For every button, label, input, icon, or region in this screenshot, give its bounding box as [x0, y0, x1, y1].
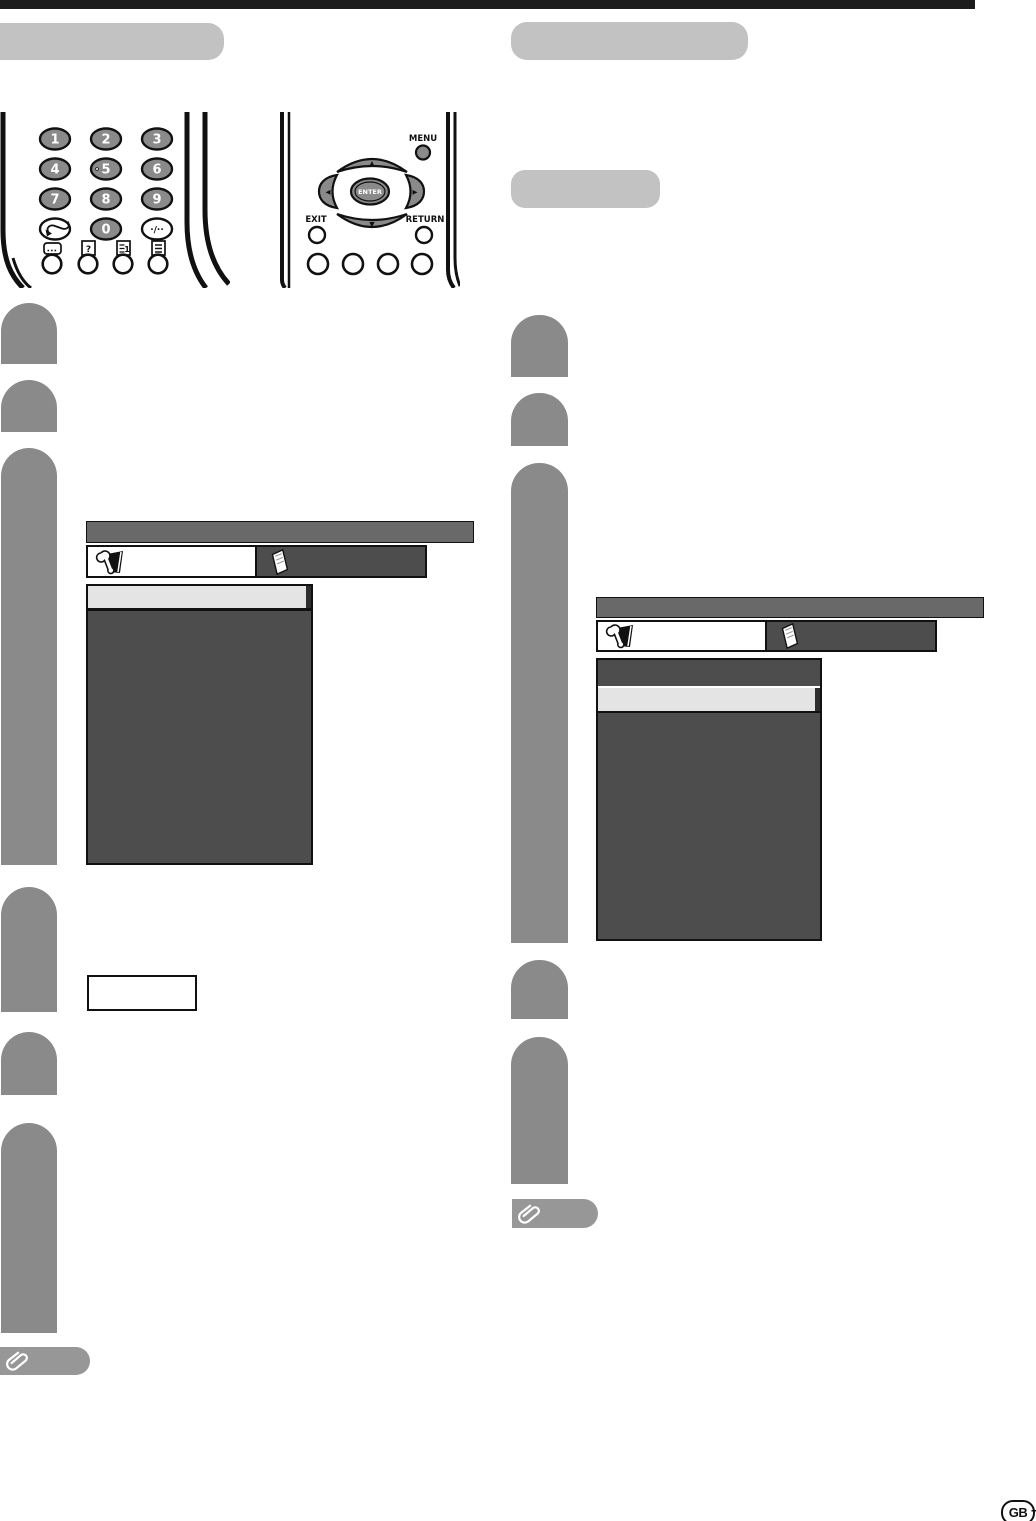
osd-selected-item: [598, 686, 820, 713]
teletext-list-icon: [152, 241, 165, 255]
step-indicator: [511, 1037, 568, 1184]
number-key-label: 6: [152, 163, 161, 178]
number-key-label: 2: [101, 133, 110, 148]
number-key-label: 0: [101, 223, 110, 238]
paperclip-icon: [6, 1348, 32, 1374]
exit-key-label: EXIT: [305, 215, 327, 225]
reveal-icon: ?: [82, 241, 95, 255]
top-rule: [0, 0, 975, 9]
osd-tab-row: [596, 620, 937, 652]
enter-key-label: ENTER: [358, 188, 382, 196]
right-arrow-icon: ▶: [413, 188, 418, 196]
osd-title-bar: [86, 521, 474, 543]
subtitle-icon: [44, 243, 61, 254]
number-key-label: 4: [50, 163, 59, 178]
osd-menu-item: [598, 660, 820, 686]
osd-option-tab: [767, 620, 937, 652]
number-key-label: 3: [152, 133, 161, 148]
step-indicator: [1, 887, 57, 1012]
function-key-row: [43, 255, 168, 274]
number-key-label: 5: [101, 163, 110, 178]
tactile-dot: [96, 168, 99, 171]
note-tag: [512, 1199, 598, 1228]
step-indicator: [511, 463, 568, 943]
subsection-header-right: [511, 170, 660, 208]
osd-setup-tab: [596, 620, 767, 652]
remote-nav-illustration: MENU ▲ ▼ ◀ ▶ ENTER EXIT RETURN: [278, 112, 460, 288]
up-arrow-icon: ▲: [369, 160, 375, 168]
booklet-icon: [266, 548, 292, 576]
paperclip-icon: [518, 1201, 544, 1227]
note-tag: [0, 1347, 90, 1375]
step-indicator: [1, 1032, 57, 1095]
left-arrow-icon: ◀: [326, 188, 331, 196]
return-key: [416, 227, 432, 243]
manual-page: 1 2 3 4 5 6 7 8 9 0 ·/·· ?: [0, 0, 1036, 1521]
osd-selected-item: [88, 586, 311, 611]
step-indicator: [1, 448, 57, 865]
input-callout-box: [87, 975, 197, 1011]
return-key-label: RETURN: [406, 215, 445, 225]
step-indicator: [1, 1123, 57, 1333]
number-key-label: 1: [50, 133, 59, 148]
menu-key: [416, 146, 430, 160]
step-indicator: [511, 315, 568, 377]
svg-text:1: 1: [124, 245, 130, 254]
osd-menu-list: [86, 584, 313, 865]
wrench-icon: [605, 622, 635, 650]
step-indicator: [1, 303, 57, 364]
down-arrow-icon: ▼: [369, 221, 375, 229]
menu-key-label: MENU: [409, 134, 437, 144]
osd-option-tab: [257, 545, 427, 578]
osd-tab-row: [86, 545, 427, 578]
number-key-label: 8: [101, 193, 110, 208]
page-number-dash: –: [1031, 1503, 1036, 1518]
section-header-right: [511, 22, 748, 60]
exit-key: [309, 227, 325, 243]
function-key-row: [308, 254, 432, 274]
booklet-icon: [776, 622, 802, 650]
dot-dash-key-label: ·/··: [150, 226, 164, 236]
section-header-left: [0, 23, 224, 60]
osd-title-bar: [596, 597, 984, 618]
step-indicator: [511, 960, 568, 1019]
number-key-label: 9: [152, 193, 161, 208]
step-indicator: [511, 393, 568, 446]
language-badge: GB: [1001, 1500, 1035, 1521]
step-indicator: [1, 380, 57, 432]
remote-numberpad-illustration: 1 2 3 4 5 6 7 8 9 0 ·/·· ?: [0, 112, 230, 288]
index-page-icon: 1: [117, 241, 130, 255]
wrench-icon: [95, 548, 125, 576]
osd-setup-tab: [86, 545, 257, 578]
number-key-label: 7: [50, 193, 59, 208]
osd-menu-list: [596, 658, 822, 941]
